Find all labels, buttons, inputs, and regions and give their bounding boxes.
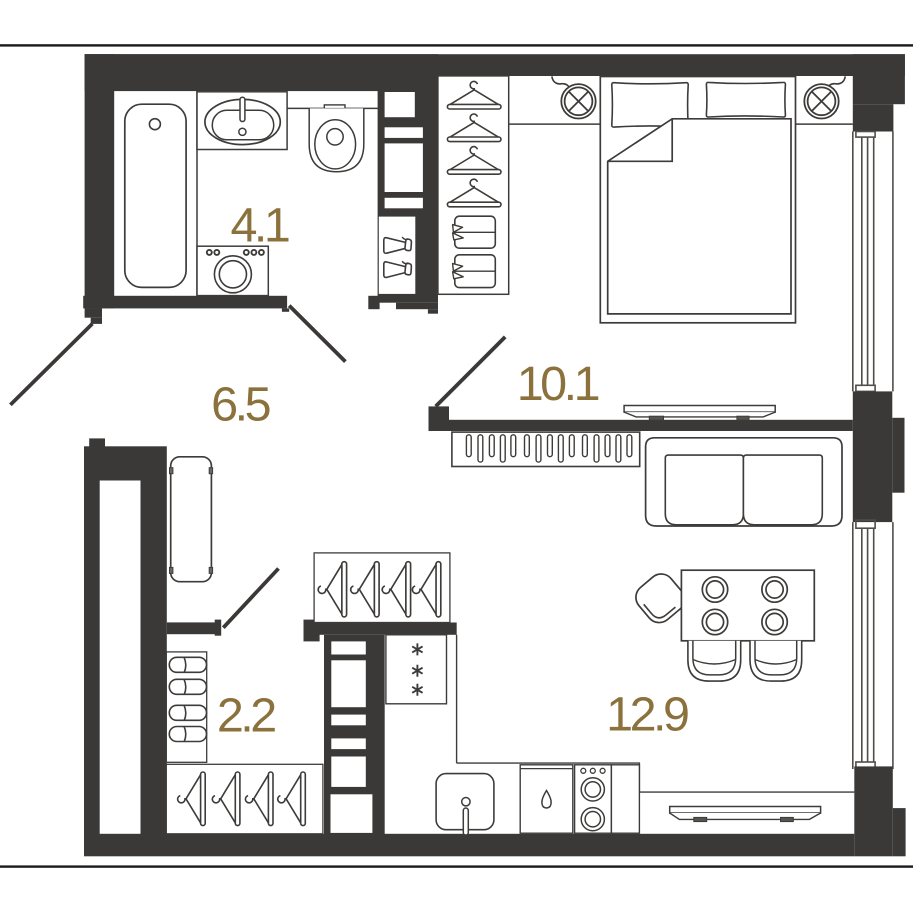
svg-text:4.1: 4.1 [230,199,288,253]
svg-text:10.1: 10.1 [517,357,599,411]
svg-text:6.5: 6.5 [211,377,269,431]
svg-text:2.2: 2.2 [217,688,275,742]
svg-text:12.9: 12.9 [606,688,688,742]
